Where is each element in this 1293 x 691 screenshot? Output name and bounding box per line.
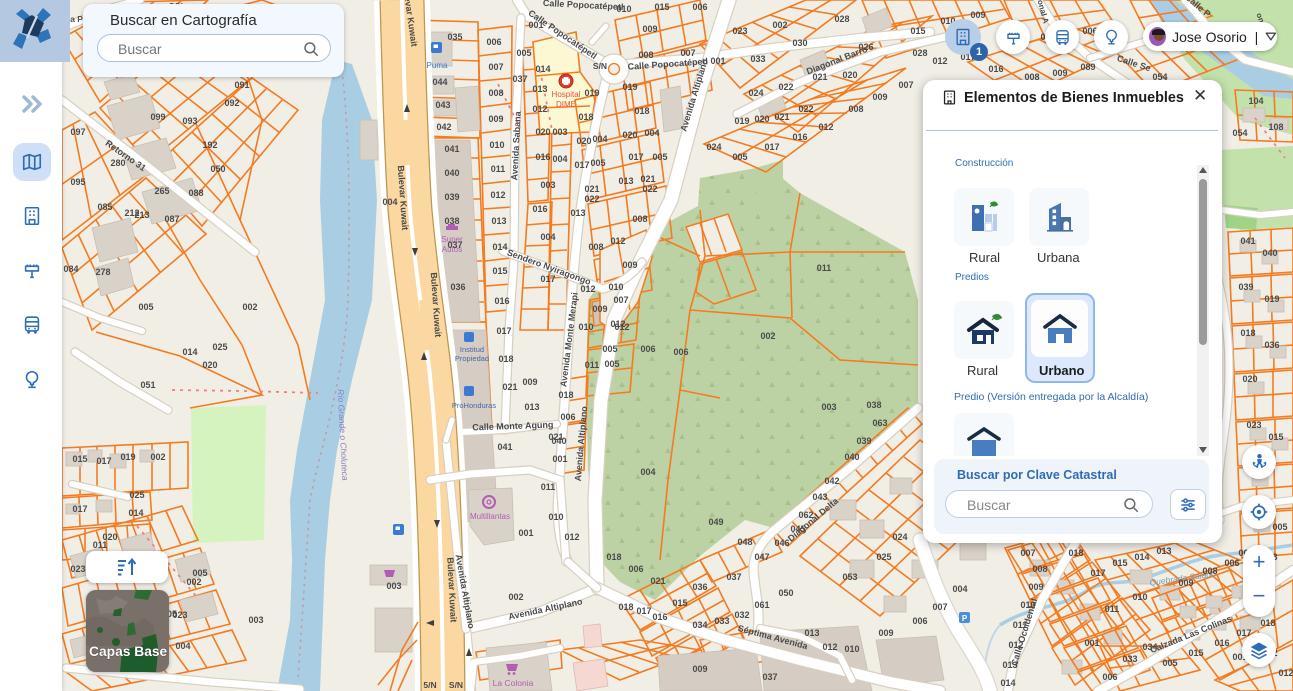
svg-text:015: 015 xyxy=(1112,558,1127,568)
svg-text:001: 001 xyxy=(710,56,725,66)
svg-text:011: 011 xyxy=(817,263,832,273)
svg-text:037: 037 xyxy=(512,74,527,84)
svg-text:022: 022 xyxy=(584,194,599,204)
svg-text:038: 038 xyxy=(444,216,459,226)
svg-text:017: 017 xyxy=(496,326,511,336)
svg-text:039: 039 xyxy=(444,192,459,202)
svg-text:037: 037 xyxy=(726,572,741,582)
svg-text:003: 003 xyxy=(552,127,567,137)
svg-text:016: 016 xyxy=(1214,638,1229,648)
svg-text:012: 012 xyxy=(564,532,579,542)
svg-text:006: 006 xyxy=(692,2,707,12)
svg-text:192: 192 xyxy=(202,140,217,150)
svg-text:036: 036 xyxy=(692,582,707,592)
svg-text:004: 004 xyxy=(952,584,967,594)
svg-text:018: 018 xyxy=(1260,618,1275,628)
svg-text:012: 012 xyxy=(1278,668,1293,678)
svg-text:005: 005 xyxy=(516,48,531,58)
svg-text:011: 011 xyxy=(541,482,556,492)
svg-text:010: 010 xyxy=(578,322,593,332)
svg-text:045: 045 xyxy=(790,524,805,534)
svg-text:Puma: Puma xyxy=(427,61,448,70)
svg-text:008: 008 xyxy=(632,214,647,224)
svg-text:011: 011 xyxy=(491,164,506,174)
svg-text:265: 265 xyxy=(154,186,169,196)
svg-text:5/N: 5/N xyxy=(423,680,436,690)
svg-text:009: 009 xyxy=(970,10,985,20)
svg-text:038: 038 xyxy=(866,400,881,410)
svg-text:008: 008 xyxy=(638,50,653,60)
svg-text:018: 018 xyxy=(558,390,573,400)
svg-text:009: 009 xyxy=(1178,578,1193,588)
svg-text:010: 010 xyxy=(608,282,623,292)
svg-text:017: 017 xyxy=(1090,568,1105,578)
svg-text:005: 005 xyxy=(192,568,207,578)
svg-text:046: 046 xyxy=(774,538,789,548)
svg-text:010: 010 xyxy=(1132,592,1147,602)
svg-text:012: 012 xyxy=(818,122,833,132)
svg-text:012: 012 xyxy=(932,56,947,66)
svg-text:012: 012 xyxy=(580,284,595,294)
svg-text:024: 024 xyxy=(892,532,907,542)
svg-text:014: 014 xyxy=(1000,678,1015,688)
svg-text:016: 016 xyxy=(652,612,667,622)
svg-text:009: 009 xyxy=(1028,582,1043,592)
svg-text:026: 026 xyxy=(858,42,873,52)
svg-text:018: 018 xyxy=(578,112,593,122)
svg-text:008: 008 xyxy=(848,104,863,114)
svg-text:093: 093 xyxy=(182,116,197,126)
svg-text:005: 005 xyxy=(590,158,605,168)
svg-text:007: 007 xyxy=(932,602,947,612)
svg-text:048: 048 xyxy=(737,537,752,547)
svg-text:213: 213 xyxy=(134,210,149,220)
svg-text:009: 009 xyxy=(622,260,637,270)
svg-text:017: 017 xyxy=(72,504,87,514)
svg-text:043: 043 xyxy=(435,100,450,110)
svg-text:084: 084 xyxy=(63,264,78,274)
svg-text:028: 028 xyxy=(912,48,927,58)
svg-text:S/N: S/N xyxy=(593,61,607,71)
svg-text:021: 021 xyxy=(812,72,827,82)
svg-text:013: 013 xyxy=(618,176,633,186)
svg-text:017: 017 xyxy=(540,274,555,284)
svg-text:099: 099 xyxy=(150,112,165,122)
svg-text:021: 021 xyxy=(502,382,517,392)
svg-text:007: 007 xyxy=(898,80,913,90)
svg-text:020: 020 xyxy=(754,114,769,124)
svg-text:061: 061 xyxy=(754,600,769,610)
svg-text:002: 002 xyxy=(760,331,775,341)
svg-text:041: 041 xyxy=(444,144,459,154)
svg-text:009: 009 xyxy=(692,664,707,674)
svg-text:025: 025 xyxy=(129,490,144,500)
svg-text:280: 280 xyxy=(110,158,125,168)
svg-text:013: 013 xyxy=(1156,546,1171,556)
svg-text:104: 104 xyxy=(1248,96,1263,106)
svg-text:049: 049 xyxy=(708,517,723,527)
svg-text:006: 006 xyxy=(673,347,688,357)
svg-text:013: 013 xyxy=(524,402,539,412)
svg-text:020: 020 xyxy=(622,130,637,140)
svg-text:018: 018 xyxy=(1240,328,1255,338)
svg-text:014: 014 xyxy=(492,242,507,252)
svg-text:091: 091 xyxy=(234,80,249,90)
svg-text:028: 028 xyxy=(834,14,849,24)
svg-text:087: 087 xyxy=(164,214,179,224)
svg-text:021: 021 xyxy=(640,174,655,184)
svg-text:009: 009 xyxy=(872,92,887,102)
svg-text:040: 040 xyxy=(1262,248,1277,258)
svg-text:053: 053 xyxy=(842,572,857,582)
svg-text:012: 012 xyxy=(490,190,505,200)
svg-text:009: 009 xyxy=(1052,68,1067,78)
svg-text:001: 001 xyxy=(528,20,543,30)
svg-text:008: 008 xyxy=(488,88,503,98)
svg-text:020: 020 xyxy=(576,136,591,146)
svg-text:010: 010 xyxy=(844,644,859,654)
svg-text:015: 015 xyxy=(72,454,87,464)
svg-text:025: 025 xyxy=(212,342,227,352)
svg-text:005: 005 xyxy=(652,152,667,162)
svg-text:Propiedad: Propiedad xyxy=(455,354,489,363)
svg-text:019: 019 xyxy=(120,452,135,462)
svg-text:Multillantas: Multillantas xyxy=(470,512,510,521)
svg-text:050: 050 xyxy=(210,164,225,174)
svg-text:020: 020 xyxy=(842,70,857,80)
svg-text:019: 019 xyxy=(734,116,749,126)
svg-text:006: 006 xyxy=(1102,672,1117,682)
svg-text:108: 108 xyxy=(1268,122,1283,132)
svg-text:DIME: DIME xyxy=(556,100,576,109)
svg-text:012: 012 xyxy=(532,104,547,114)
svg-text:Capas Base: Capas Base xyxy=(89,644,168,659)
svg-text:006: 006 xyxy=(912,616,927,626)
svg-text:042: 042 xyxy=(824,476,839,486)
svg-text:050: 050 xyxy=(778,588,793,598)
svg-text:034: 034 xyxy=(1142,642,1157,652)
svg-text:015: 015 xyxy=(1268,432,1283,442)
svg-text:018: 018 xyxy=(498,354,513,364)
svg-text:013: 013 xyxy=(570,208,585,218)
svg-text:040: 040 xyxy=(844,452,859,462)
svg-text:037: 037 xyxy=(447,240,462,250)
svg-text:033: 033 xyxy=(750,54,765,64)
svg-text:039: 039 xyxy=(856,436,871,446)
svg-text:022: 022 xyxy=(778,82,793,92)
svg-text:024: 024 xyxy=(706,142,721,152)
svg-text:041: 041 xyxy=(1240,236,1255,246)
svg-text:006: 006 xyxy=(640,344,655,354)
svg-text:022: 022 xyxy=(798,104,813,114)
svg-text:015: 015 xyxy=(672,598,687,608)
svg-text:039: 039 xyxy=(1238,282,1253,292)
svg-text:005: 005 xyxy=(1272,522,1287,532)
svg-text:003: 003 xyxy=(248,615,263,625)
svg-text:009: 009 xyxy=(522,377,537,387)
svg-text:001: 001 xyxy=(552,454,567,464)
svg-text:036: 036 xyxy=(450,282,465,292)
svg-text:Institud: Institud xyxy=(460,345,484,354)
svg-text:006: 006 xyxy=(560,412,575,422)
svg-text:017: 017 xyxy=(636,606,651,616)
svg-text:017: 017 xyxy=(96,456,111,466)
svg-text:047: 047 xyxy=(754,552,769,562)
svg-text:011: 011 xyxy=(1013,620,1028,630)
svg-text:016: 016 xyxy=(494,296,509,306)
svg-text:023: 023 xyxy=(172,610,187,620)
svg-text:003: 003 xyxy=(386,581,401,591)
svg-text:024: 024 xyxy=(748,88,763,98)
svg-text:008: 008 xyxy=(588,242,603,252)
svg-text:011: 011 xyxy=(585,360,600,370)
svg-text:014: 014 xyxy=(535,64,550,74)
svg-text:030: 030 xyxy=(792,38,807,48)
svg-text:008: 008 xyxy=(1032,564,1047,574)
svg-text:001: 001 xyxy=(1084,638,1099,648)
svg-text:011: 011 xyxy=(93,540,108,550)
svg-text:017: 017 xyxy=(628,152,643,162)
svg-text:ProHonduras: ProHonduras xyxy=(452,401,496,410)
svg-text:002: 002 xyxy=(242,302,257,312)
svg-text:025: 025 xyxy=(876,552,891,562)
svg-text:002: 002 xyxy=(508,592,523,602)
svg-text:006: 006 xyxy=(1224,558,1239,568)
svg-text:017: 017 xyxy=(764,142,779,152)
svg-text:012: 012 xyxy=(610,319,625,329)
svg-text:010: 010 xyxy=(548,512,563,522)
svg-text:005: 005 xyxy=(732,152,747,162)
svg-text:002: 002 xyxy=(772,20,787,30)
svg-text:023: 023 xyxy=(1246,420,1261,430)
svg-text:012: 012 xyxy=(822,642,837,652)
svg-text:041: 041 xyxy=(497,442,512,452)
svg-text:011: 011 xyxy=(1105,604,1120,614)
svg-text:036: 036 xyxy=(1264,340,1279,350)
svg-text:014: 014 xyxy=(128,508,143,518)
svg-text:022: 022 xyxy=(642,184,657,194)
svg-text:085: 085 xyxy=(97,202,112,212)
svg-text:017: 017 xyxy=(574,160,589,170)
svg-text:095: 095 xyxy=(70,177,85,187)
svg-text:009: 009 xyxy=(592,304,607,314)
svg-text:034: 034 xyxy=(692,620,707,630)
svg-text:051: 051 xyxy=(140,380,155,390)
svg-text:021: 021 xyxy=(548,432,563,442)
svg-text:020: 020 xyxy=(535,127,550,137)
svg-text:033: 033 xyxy=(1122,654,1137,664)
svg-text:010: 010 xyxy=(1020,600,1035,610)
svg-text:007: 007 xyxy=(680,48,695,58)
svg-text:023: 023 xyxy=(732,26,747,36)
svg-text:010: 010 xyxy=(489,140,504,150)
svg-text:015: 015 xyxy=(910,26,925,36)
svg-text:014: 014 xyxy=(182,347,197,357)
svg-text:006: 006 xyxy=(628,564,643,574)
svg-text:021: 021 xyxy=(774,112,789,122)
svg-text:004: 004 xyxy=(640,467,655,477)
svg-text:033: 033 xyxy=(714,616,729,626)
svg-text:004: 004 xyxy=(382,197,397,207)
svg-text:020: 020 xyxy=(1242,374,1257,384)
svg-text:004: 004 xyxy=(540,232,555,242)
svg-text:001: 001 xyxy=(518,528,533,538)
svg-text:005: 005 xyxy=(1162,658,1177,668)
svg-text:089: 089 xyxy=(1080,62,1095,72)
svg-text:003: 003 xyxy=(821,402,836,412)
svg-text:005: 005 xyxy=(604,359,619,369)
svg-text:013: 013 xyxy=(532,84,547,94)
svg-text:004: 004 xyxy=(592,134,607,144)
svg-text:013: 013 xyxy=(1002,660,1017,670)
svg-text:009: 009 xyxy=(642,24,657,34)
svg-text:010: 010 xyxy=(616,4,631,14)
svg-text:023: 023 xyxy=(70,564,85,574)
svg-text:092: 092 xyxy=(224,98,239,108)
svg-text:020: 020 xyxy=(202,360,217,370)
svg-text:S/N: S/N xyxy=(449,680,463,690)
svg-text:008: 008 xyxy=(1202,566,1217,576)
svg-text:044: 044 xyxy=(432,77,447,87)
svg-text:005: 005 xyxy=(138,302,153,312)
svg-text:015: 015 xyxy=(654,2,669,12)
svg-text:062: 062 xyxy=(798,510,813,520)
svg-text:P: P xyxy=(962,614,968,623)
svg-text:021: 021 xyxy=(584,184,599,194)
svg-text:018: 018 xyxy=(1068,548,1083,558)
svg-text:018: 018 xyxy=(634,106,649,116)
svg-text:016: 016 xyxy=(792,132,807,142)
svg-text:004: 004 xyxy=(175,641,190,651)
svg-text:035: 035 xyxy=(447,32,462,42)
svg-text:Hospital: Hospital xyxy=(552,90,581,99)
svg-text:019: 019 xyxy=(1264,294,1279,304)
svg-text:013: 013 xyxy=(804,628,819,638)
svg-text:002: 002 xyxy=(186,577,201,587)
svg-text:063: 063 xyxy=(872,418,887,428)
svg-text:018: 018 xyxy=(618,602,633,612)
svg-text:016: 016 xyxy=(532,204,547,214)
svg-text:015: 015 xyxy=(1188,648,1203,658)
svg-text:009: 009 xyxy=(878,628,893,638)
svg-text:043: 043 xyxy=(812,492,827,502)
svg-text:004: 004 xyxy=(552,154,567,164)
svg-text:007: 007 xyxy=(1020,548,1035,558)
svg-text:007: 007 xyxy=(488,62,503,72)
svg-text:012: 012 xyxy=(1008,640,1023,650)
svg-text:007: 007 xyxy=(613,295,628,305)
svg-text:012: 012 xyxy=(610,236,625,246)
svg-text:004: 004 xyxy=(644,128,659,138)
svg-text:005: 005 xyxy=(602,344,617,354)
svg-text:018: 018 xyxy=(606,552,621,562)
svg-text:013: 013 xyxy=(491,216,506,226)
svg-text:015: 015 xyxy=(492,266,507,276)
svg-text:006: 006 xyxy=(486,37,501,47)
svg-text:002: 002 xyxy=(150,452,165,462)
svg-text:054: 054 xyxy=(1232,128,1247,138)
svg-text:014: 014 xyxy=(1134,552,1149,562)
svg-text:016: 016 xyxy=(535,152,550,162)
svg-text:032: 032 xyxy=(734,610,749,620)
svg-text:009: 009 xyxy=(488,114,503,124)
svg-text:019: 019 xyxy=(584,88,599,98)
svg-text:021: 021 xyxy=(650,576,665,586)
svg-text:019: 019 xyxy=(622,82,637,92)
svg-text:040: 040 xyxy=(444,168,459,178)
svg-text:La Colonia: La Colonia xyxy=(493,678,534,688)
svg-text:003: 003 xyxy=(540,180,555,190)
svg-text:278: 278 xyxy=(95,267,110,277)
svg-text:042: 042 xyxy=(436,122,451,132)
svg-text:088: 088 xyxy=(188,188,203,198)
svg-text:037: 037 xyxy=(762,672,777,682)
svg-text:016: 016 xyxy=(988,64,1003,74)
svg-text:097: 097 xyxy=(70,127,85,137)
